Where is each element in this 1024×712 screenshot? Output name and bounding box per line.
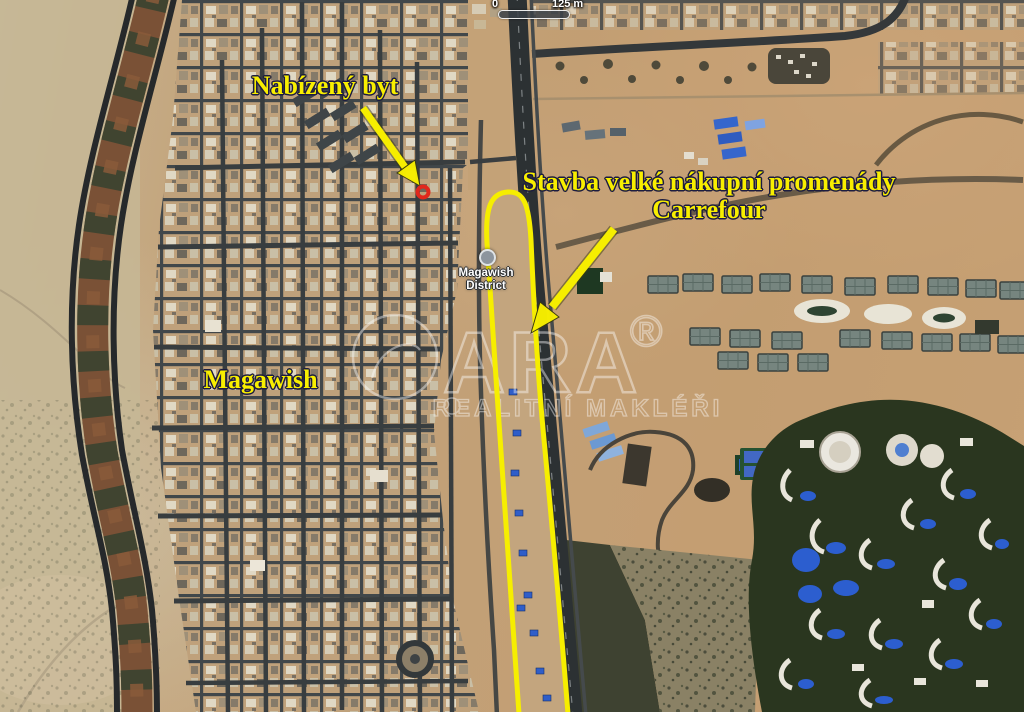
- scale-distance-label: 125 m: [552, 0, 583, 10]
- watermark-tagline: REALITNÍ MAKLÉŘI: [433, 394, 724, 422]
- annotation-promenade-line1: Stavba velké nákupní promenády: [518, 168, 900, 196]
- annotation-promenade: Stavba velké nákupní promenády Carrefour: [518, 168, 900, 224]
- district-poi-label-line2: District: [436, 280, 536, 293]
- scale-zero-label: 0: [492, 0, 498, 10]
- annotation-promenade-line2: Carrefour: [518, 196, 900, 224]
- satellite-layer: ARA ® REALITNÍ MAKLÉŘI: [0, 0, 1024, 712]
- north-frontage: [468, 0, 516, 190]
- scrub-desert: [566, 540, 760, 712]
- district-poi-icon: [479, 249, 496, 266]
- annotation-apartment: Nabízený byt: [240, 72, 410, 100]
- annotation-district-name: Magawish: [198, 366, 323, 394]
- watermark-registered: ®: [630, 307, 662, 356]
- scale-bar: [498, 10, 570, 19]
- satellite-map-image: ARA ® REALITNÍ MAKLÉŘI 0 125 m Magawish …: [0, 0, 1024, 712]
- resort-complex: [749, 400, 1024, 712]
- district-poi-label: Magawish District: [436, 267, 536, 293]
- district-poi-label-line1: Magawish: [436, 267, 536, 280]
